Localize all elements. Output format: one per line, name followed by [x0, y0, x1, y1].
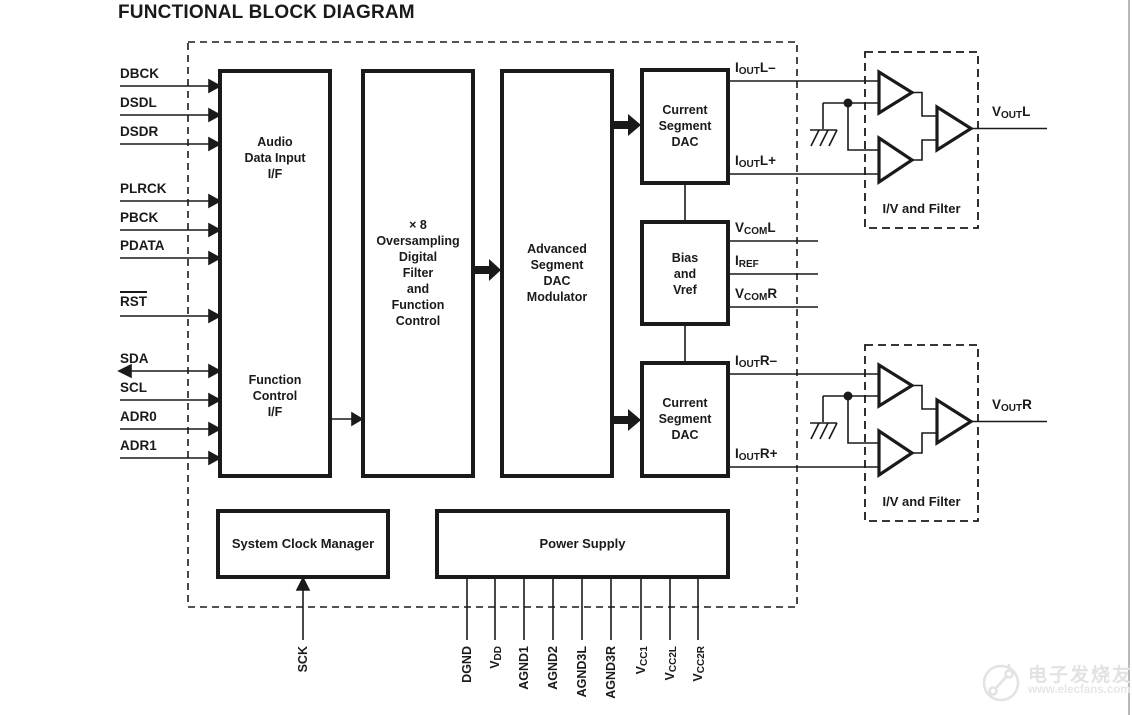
pin-label-agnd3r: AGND3R	[603, 646, 623, 715]
junction-dot-right	[844, 392, 853, 401]
pin-label-iref: IREF	[735, 253, 759, 273]
pin-label-dsdl: DSDL	[120, 95, 157, 111]
diagram-page: FUNCTIONAL BLOCK DIAGRAM DBCK DSDL DSDR …	[0, 0, 1132, 715]
block-label-modulator: Advanced Segment DAC Modulator	[503, 228, 611, 318]
pin-label-vcomr: VCOMR	[735, 286, 777, 306]
pin-label-vcoml: VCOML	[735, 220, 776, 240]
pin-label-vcc1: VCC1	[633, 646, 653, 715]
opamp-stage-left	[810, 72, 1047, 182]
pin-label-adr1: ADR1	[120, 438, 157, 454]
block-label-function-if: Function Control I/F	[222, 358, 328, 433]
pin-label-scl: SCL	[120, 380, 147, 396]
right-signal-lines	[728, 81, 879, 467]
pin-label-ioutl-minus: IOUTL–	[735, 60, 776, 80]
pin-label-adr0: ADR0	[120, 409, 157, 425]
pin-label-vdd: VDD	[487, 646, 507, 715]
pin-label-agnd3l: AGND3L	[574, 646, 594, 715]
pin-label-dgnd: DGND	[459, 646, 479, 715]
block-label-clock-manager: System Clock Manager	[220, 513, 386, 575]
pin-label-pdata: PDATA	[120, 238, 165, 254]
pin-label-pbck: PBCK	[120, 210, 158, 226]
pin-label-vcc2r: VCC2R	[690, 646, 710, 715]
block-label-iv-filter-r: I/V and Filter	[866, 491, 977, 513]
pin-label-sda: SDA	[120, 351, 149, 367]
block-label-iv-filter-l: I/V and Filter	[866, 198, 977, 220]
page-title: FUNCTIONAL BLOCK DIAGRAM	[118, 2, 415, 24]
block-label-power-supply: Power Supply	[439, 513, 726, 575]
block-label-oversampling: × 8 Oversampling Digital Filter and Func…	[364, 212, 472, 334]
pin-label-ioutr-minus: IOUTR–	[735, 353, 777, 373]
pin-label-agnd2: AGND2	[545, 646, 565, 715]
pin-label-ioutr-plus: IOUTR+	[735, 446, 778, 466]
pin-label-voutl: VOUTL	[992, 104, 1030, 124]
opamp-stage-right	[810, 365, 1047, 475]
block-label-bias-vref: Bias and Vref	[643, 240, 727, 308]
watermark-url: www.elecfans.com	[1028, 684, 1130, 696]
pin-label-rst: RST	[120, 294, 147, 310]
pin-label-voutr: VOUTR	[992, 397, 1032, 417]
pin-label-agnd1: AGND1	[516, 646, 536, 715]
pin-label-dsdr: DSDR	[120, 124, 158, 140]
pin-label-ioutl-plus: IOUTL+	[735, 153, 776, 173]
block-label-audio-if: Audio Data Input I/F	[222, 120, 328, 195]
pin-label-vcc2l: VCC2L	[662, 646, 682, 715]
block-label-current-dac-l: Current Segment DAC	[643, 92, 727, 160]
junction-dot-left	[844, 99, 853, 108]
pin-label-sck: SCK	[295, 646, 315, 715]
watermark-name: 电子发烧友	[1028, 660, 1132, 687]
diagram-canvas	[0, 0, 1132, 715]
block-label-current-dac-r: Current Segment DAC	[643, 385, 727, 453]
opamp-triangles-left	[879, 72, 971, 182]
pin-label-dbck: DBCK	[120, 66, 159, 82]
elecfans-logo-icon	[984, 664, 1018, 700]
power-pin-lines	[467, 577, 698, 640]
pin-label-plrck: PLRCK	[120, 181, 167, 197]
opamp-triangles-right	[879, 365, 971, 475]
